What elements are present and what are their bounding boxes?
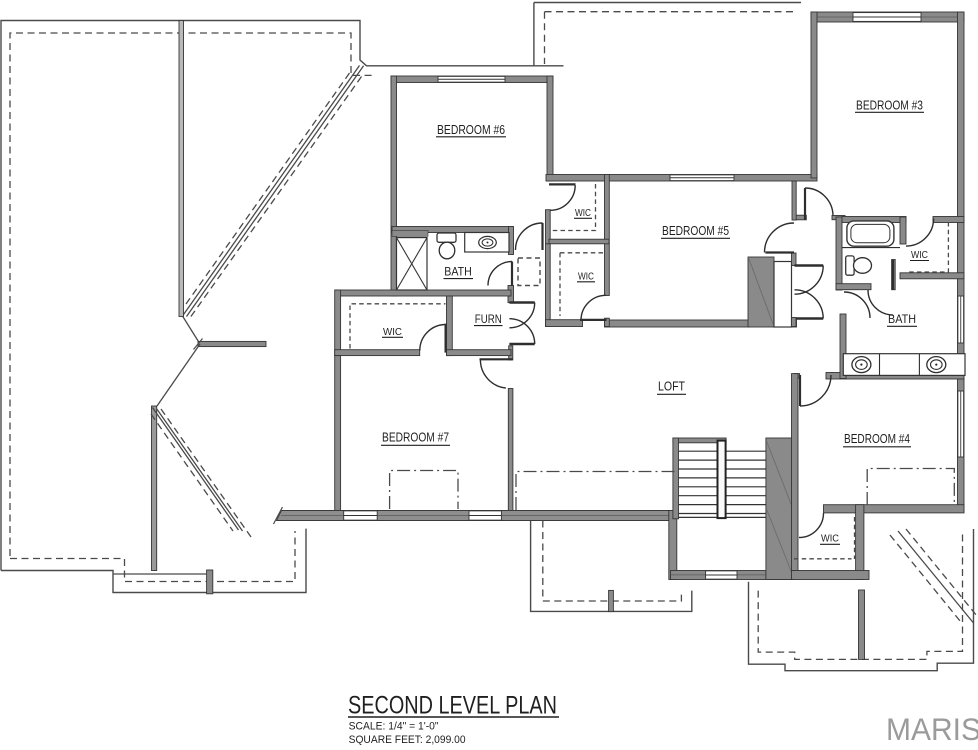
svg-text:SQUARE FEET: 2,099.00: SQUARE FEET: 2,099.00 (349, 734, 466, 745)
svg-text:MARIS: MARIS (886, 711, 978, 745)
svg-text:BEDROOM #5: BEDROOM #5 (662, 224, 729, 238)
svg-text:BEDROOM #6: BEDROOM #6 (437, 123, 505, 137)
svg-text:WIC: WIC (575, 207, 591, 219)
svg-text:LOFT: LOFT (658, 380, 685, 394)
svg-text:WIC: WIC (383, 326, 402, 338)
svg-text:WIC: WIC (821, 533, 839, 545)
svg-text:BATH: BATH (444, 265, 472, 279)
svg-text:BEDROOM #7: BEDROOM #7 (382, 431, 449, 445)
svg-text:BATH: BATH (888, 312, 916, 326)
svg-text:SCALE: 1/4" = 1'-0": SCALE: 1/4" = 1'-0" (349, 721, 439, 733)
svg-text:SECOND LEVEL PLAN: SECOND LEVEL PLAN (348, 692, 557, 720)
svg-text:BEDROOM #3: BEDROOM #3 (856, 98, 923, 113)
svg-text:WIC: WIC (911, 249, 928, 261)
svg-text:BEDROOM #4: BEDROOM #4 (844, 432, 910, 446)
svg-text:WIC: WIC (578, 270, 594, 282)
svg-text:FURN: FURN (475, 314, 502, 326)
